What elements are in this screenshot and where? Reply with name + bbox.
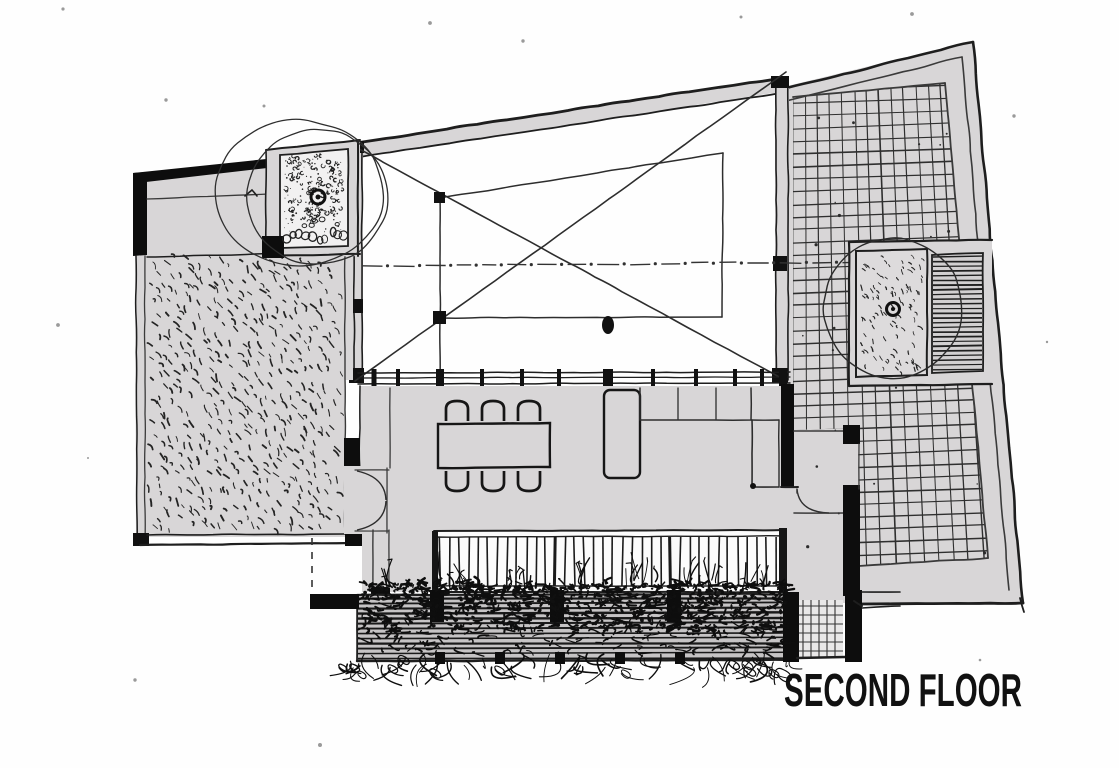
svg-text:SECOND FLOOR: SECOND FLOOR xyxy=(784,664,1022,716)
